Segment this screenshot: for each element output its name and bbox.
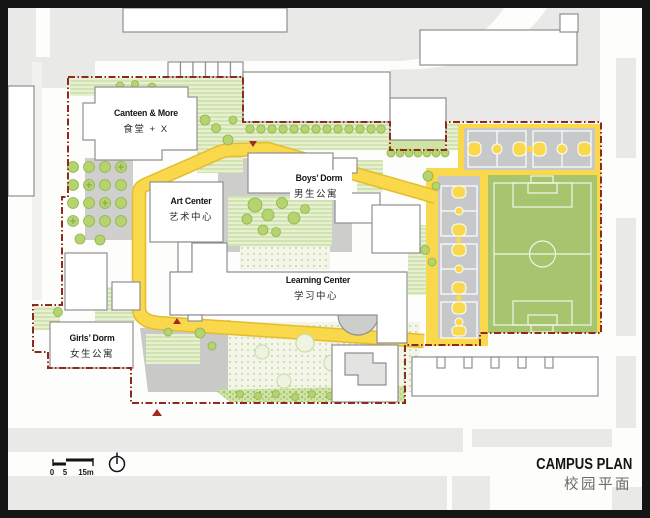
- context-building-northeast: [420, 30, 577, 65]
- context-building-north-east: [390, 98, 446, 140]
- building-heritage-south: [332, 345, 398, 402]
- campus-plan-drawing: Canteen & More 食堂 + X Art Center 艺术中心 Bo…: [0, 0, 650, 518]
- boundary-stalls: [168, 62, 243, 77]
- building-art-center: [150, 182, 223, 242]
- building-canteen: [83, 87, 197, 160]
- context-building-west: [8, 86, 34, 196]
- building-northeast-wing: [372, 205, 420, 253]
- context-building-north-central: [243, 72, 390, 122]
- site-plan-canvas: [0, 0, 650, 518]
- context-building-northwest: [123, 8, 287, 32]
- soccer-field: [488, 175, 597, 333]
- building-girls-dorm: [50, 322, 133, 368]
- context-building-south-comb: [412, 357, 598, 396]
